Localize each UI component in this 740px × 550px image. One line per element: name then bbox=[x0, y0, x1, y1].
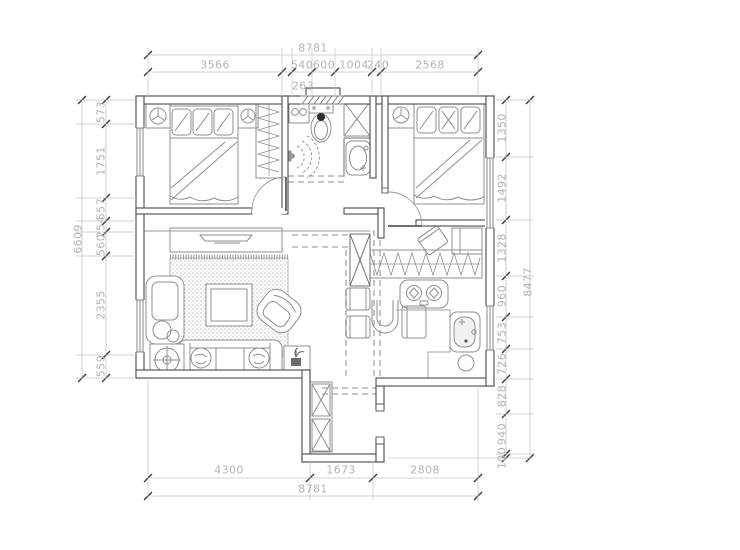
chaise-chair bbox=[146, 276, 184, 344]
dim-left-seg-6: 559 bbox=[96, 355, 107, 377]
dim-bottom-total: 8781 bbox=[298, 484, 328, 495]
dim-top-total: 8781 bbox=[298, 43, 328, 54]
dim-top-inset: 263 bbox=[292, 81, 314, 92]
dim-right-seg-4: 753 bbox=[497, 322, 508, 344]
dim-left-seg-4: 560 bbox=[96, 234, 107, 256]
floor-drain bbox=[458, 355, 474, 371]
kitchen-chair bbox=[402, 306, 426, 338]
wall-bedroom1-bottom bbox=[136, 208, 252, 214]
floor-plan-drawing bbox=[0, 0, 740, 550]
wall-corridor-left bbox=[302, 370, 310, 462]
wall-kitchen-bottom bbox=[376, 378, 494, 386]
wall-bathroom-right bbox=[370, 96, 376, 178]
wall-hall-east bbox=[378, 208, 384, 238]
dim-right-seg-1: 1492 bbox=[497, 173, 508, 203]
bathroom-basin bbox=[289, 103, 309, 123]
shoe-cabinet bbox=[310, 382, 332, 452]
desk-chair bbox=[417, 225, 448, 255]
toilet bbox=[309, 104, 333, 142]
dim-top-seg-2: 600 bbox=[313, 60, 335, 71]
tv-console bbox=[170, 228, 282, 252]
dim-top-seg-0: 3566 bbox=[200, 60, 230, 71]
structural-column bbox=[350, 234, 370, 286]
dim-top-seg-4: 240 bbox=[367, 60, 389, 71]
dining-chair-1 bbox=[346, 288, 370, 310]
wall-bedroom2-left bbox=[382, 96, 388, 192]
dim-right-seg-7: 940 bbox=[497, 423, 508, 445]
dim-top-seg-5: 2568 bbox=[415, 60, 445, 71]
window-bathroom-top bbox=[300, 95, 344, 105]
wall-corridor-bottom bbox=[302, 454, 384, 462]
dim-left-seg-1: 1751 bbox=[96, 146, 107, 176]
window-bedroom2-right bbox=[485, 158, 495, 228]
dim-right-seg-2: 1328 bbox=[497, 233, 508, 263]
shower-head bbox=[287, 136, 319, 178]
dim-right-seg-8: 100 bbox=[497, 447, 508, 469]
wall-bedroom2-bottom bbox=[416, 220, 486, 226]
dim-right-seg-0: 1350 bbox=[497, 113, 508, 143]
dim-left-total: 6609 bbox=[73, 224, 84, 254]
dim-right-total: 8477 bbox=[523, 267, 534, 297]
dim-bottom-seg-0: 4300 bbox=[214, 465, 244, 476]
bedroom1-nightstand-left bbox=[146, 104, 170, 128]
dim-right-seg-5: 726 bbox=[497, 353, 508, 375]
bedroom1-nightstand-right bbox=[238, 104, 258, 128]
floor-plan-canvas: 8781 3566 540 600 1004 240 2568 263 6609… bbox=[0, 0, 740, 550]
counter-edge bbox=[396, 310, 450, 378]
kitchen-sink bbox=[450, 312, 480, 352]
window-living-left bbox=[135, 300, 145, 352]
dim-right-seg-6: 828 bbox=[497, 385, 508, 407]
dim-top-seg-3: 1004 bbox=[339, 60, 369, 71]
door-entry bbox=[375, 404, 385, 444]
duct-shaft bbox=[344, 102, 370, 136]
bathroom-sink bbox=[344, 138, 370, 177]
window-bedroom1-left bbox=[135, 128, 145, 176]
dim-left-seg-0: 573 bbox=[96, 101, 107, 123]
bedroom1-wardrobe bbox=[256, 102, 282, 178]
dim-left-seg-5: 2355 bbox=[96, 290, 107, 320]
stove bbox=[400, 280, 448, 308]
coffee-table bbox=[206, 284, 252, 326]
bedroom1-double-bed bbox=[170, 106, 238, 204]
bedroom2-bed bbox=[414, 104, 484, 204]
dim-bottom-seg-1: 1673 bbox=[326, 465, 356, 476]
dim-right-seg-3: 960 bbox=[497, 285, 508, 307]
door-bedroom1 bbox=[252, 177, 286, 214]
bedroom2-nightstand bbox=[388, 102, 414, 128]
dim-top-seg-1: 540 bbox=[291, 60, 313, 71]
counter-peninsula bbox=[372, 300, 398, 333]
dim-bottom-seg-2: 2808 bbox=[410, 465, 440, 476]
window-kitchen-right bbox=[485, 306, 495, 350]
wall-bottom-left bbox=[136, 370, 310, 378]
dining-chair-2 bbox=[346, 316, 370, 338]
